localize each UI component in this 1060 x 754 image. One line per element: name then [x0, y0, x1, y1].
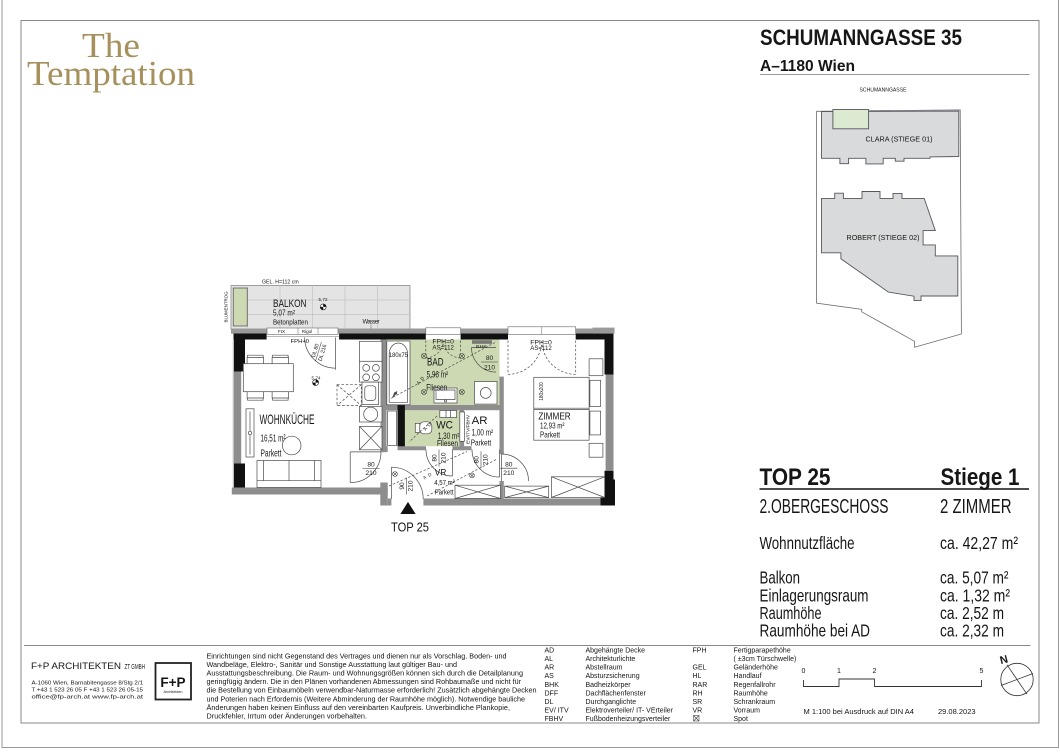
svg-text:BHK: BHK: [545, 682, 560, 689]
svg-text:210: 210: [482, 454, 489, 465]
svg-text:80: 80: [474, 456, 481, 464]
svg-text:4,57 m²: 4,57 m²: [434, 478, 455, 487]
svg-text:BAD: BAD: [427, 357, 444, 369]
svg-text:Durchganglichte: Durchganglichte: [586, 699, 637, 706]
svg-text:F+P ARCHITEKTEN: F+P ARCHITEKTEN: [31, 661, 121, 671]
svg-text:210: 210: [503, 470, 514, 477]
svg-text:ca. 5,07 m²: ca. 5,07 m²: [940, 568, 1009, 588]
svg-text:29.08.2023: 29.08.2023: [938, 707, 976, 716]
svg-text:80: 80: [505, 461, 513, 468]
svg-text:Raumhöhe bei AD: Raumhöhe bei AD: [760, 621, 871, 641]
svg-text:FIX: FIX: [278, 329, 285, 334]
svg-text:Parkett: Parkett: [471, 438, 492, 448]
svg-text:Regenfallrohr: Regenfallrohr: [734, 682, 777, 689]
svg-text:Druckfehler, Irrtum oder Änder: Druckfehler, Irrtum oder Änderungen vorb…: [207, 712, 368, 721]
svg-text:1: 1: [837, 668, 841, 675]
svg-text:M 1:100 bei Ausdruck auf DIN A: M 1:100 bei Ausdruck auf DIN A4: [804, 707, 914, 716]
svg-text:ca. 42,27 m²: ca. 42,27 m²: [940, 533, 1018, 553]
svg-text:AD: AD: [545, 648, 555, 655]
svg-text:80: 80: [486, 355, 494, 362]
svg-text:( ±3cm Türschwelle): ( ±3cm Türschwelle): [734, 656, 797, 663]
svg-text:AR: AR: [545, 665, 555, 672]
svg-text:ROBERT (STIEGE 02): ROBERT (STIEGE 02): [847, 233, 920, 242]
svg-text:Temptation: Temptation: [27, 54, 195, 93]
svg-text:office@fp-arch.at www.fp-a: office@fp-arch.at www.fp-arch.at: [32, 695, 144, 701]
svg-text:Parkett: Parkett: [540, 430, 560, 440]
svg-text:Absturzsicherung: Absturzsicherung: [586, 673, 640, 680]
svg-text:0: 0: [802, 668, 806, 675]
svg-text:Geländerhöhe: Geländerhöhe: [734, 665, 778, 672]
svg-text:180x200: 180x200: [539, 382, 545, 401]
svg-text:1,00 m²: 1,00 m²: [472, 427, 494, 437]
svg-text:VR: VR: [435, 467, 447, 477]
svg-text:Vorraum: Vorraum: [734, 708, 761, 715]
svg-text:Raumhöhe: Raumhöhe: [734, 690, 768, 697]
svg-text:2 ZIMMER: 2 ZIMMER: [940, 496, 1012, 518]
svg-text:80: 80: [367, 462, 375, 469]
svg-text:Architekten: Architekten: [164, 690, 183, 694]
svg-text:FPH: FPH: [693, 648, 707, 655]
svg-text:FPH+0: FPH+0: [291, 339, 310, 345]
svg-text:ca. 2,32 m: ca. 2,32 m: [940, 621, 1004, 641]
svg-text:Elektroverteiler/ IT- VErteile: Elektroverteiler/ IT- VErteiler: [586, 708, 674, 715]
svg-text:EV/ ITV: EV/ ITV: [545, 708, 569, 715]
svg-text:BLUMENTROG: BLUMENTROG: [224, 291, 229, 323]
svg-text:Dachflächenfenster: Dachflächenfenster: [586, 690, 647, 697]
svg-text:Badheizkörper: Badheizkörper: [586, 682, 632, 689]
svg-text:AS=112: AS=112: [432, 345, 454, 351]
svg-text:SCHUMANNGASSE: SCHUMANNGASSE: [860, 88, 907, 94]
svg-text:AR: AR: [472, 415, 488, 427]
svg-text:Parkett: Parkett: [435, 487, 454, 496]
svg-text:Rigol: Rigol: [302, 329, 312, 334]
svg-text:Handlauf: Handlauf: [734, 673, 762, 680]
svg-text:TOP 25: TOP 25: [760, 464, 831, 491]
svg-text:5,96 m²: 5,96 m²: [427, 369, 449, 379]
svg-text:Balkon: Balkon: [760, 568, 801, 588]
svg-text:HL: HL: [693, 673, 702, 680]
svg-text:AS: AS: [545, 673, 555, 680]
svg-text:AS=112: AS=112: [530, 346, 552, 352]
svg-text:SR: SR: [693, 699, 703, 706]
svg-text:Betonplatten: Betonplatten: [273, 318, 308, 327]
svg-text:ZT GMBH: ZT GMBH: [125, 664, 146, 671]
svg-text:16,51 m²: 16,51 m²: [261, 434, 286, 445]
svg-text:RH: RH: [693, 690, 703, 697]
svg-text:WOHNKÜCHE: WOHNKÜCHE: [260, 410, 315, 427]
svg-text:DL: DL: [545, 699, 554, 706]
svg-text:DFF: DFF: [545, 690, 559, 697]
svg-text:90: 90: [399, 482, 406, 490]
svg-text:Abstellraum: Abstellraum: [586, 665, 623, 672]
svg-text:BHK: BHK: [476, 344, 488, 350]
svg-text:80: 80: [432, 454, 439, 462]
svg-text:Fertigparapethöhe: Fertigparapethöhe: [734, 648, 791, 655]
svg-text:AL: AL: [545, 656, 554, 663]
svg-text:210: 210: [408, 480, 415, 491]
svg-text:TOP 25: TOP 25: [391, 520, 429, 535]
svg-text:Wohnnutzfläche: Wohnnutzfläche: [760, 533, 855, 553]
svg-text:RAR: RAR: [693, 682, 708, 689]
svg-text:A-1060 Wien, Barnabitengasse 8: A-1060 Wien, Barnabitengasse 8/Stg 2/1: [32, 681, 144, 687]
svg-text:210: 210: [484, 365, 495, 372]
svg-text:Fliesen: Fliesen: [437, 439, 458, 448]
svg-text:Fußbodenheizungsverteiler: Fußbodenheizungsverteiler: [586, 716, 671, 723]
svg-text:F+P: F+P: [160, 675, 185, 690]
svg-text:5,72: 5,72: [319, 297, 329, 302]
svg-text:CLARA (STIEGE 01): CLARA (STIEGE 01): [866, 135, 933, 144]
svg-text:GEL. H=112 cm: GEL. H=112 cm: [262, 280, 299, 286]
svg-text:Stiege 1: Stiege 1: [941, 464, 1020, 491]
svg-text:GEL: GEL: [693, 665, 707, 672]
svg-text:210: 210: [440, 452, 447, 463]
svg-text:2.OBERGESCHOSS: 2.OBERGESCHOSS: [760, 496, 889, 518]
svg-text:WC: WC: [436, 420, 453, 432]
svg-text:2: 2: [873, 668, 877, 675]
svg-text:5,07 m²: 5,07 m²: [273, 309, 295, 318]
svg-text:T +43 1 523 26 05 F +43 1 52: T +43 1 523 26 05 F +43 1 523 26 05-15: [32, 688, 144, 694]
svg-text:Fliesen: Fliesen: [426, 383, 447, 393]
svg-text:VR: VR: [693, 708, 703, 715]
svg-text:A–1180 Wien: A–1180 Wien: [760, 58, 855, 75]
svg-text:5: 5: [980, 668, 984, 675]
svg-text:210: 210: [365, 470, 376, 477]
svg-text:Spot: Spot: [734, 716, 748, 723]
svg-text:SCHUMANNGASSE 35: SCHUMANNGASSE 35: [760, 25, 962, 50]
svg-text:Schrankraum: Schrankraum: [734, 699, 776, 706]
svg-text:Abgehängte Decke: Abgehängte Decke: [586, 648, 646, 655]
svg-text:180x75: 180x75: [389, 353, 409, 359]
svg-text:Parkett: Parkett: [261, 449, 282, 460]
svg-text:FBHV: FBHV: [545, 716, 564, 723]
svg-text:Architekturlichte: Architekturlichte: [586, 656, 636, 663]
